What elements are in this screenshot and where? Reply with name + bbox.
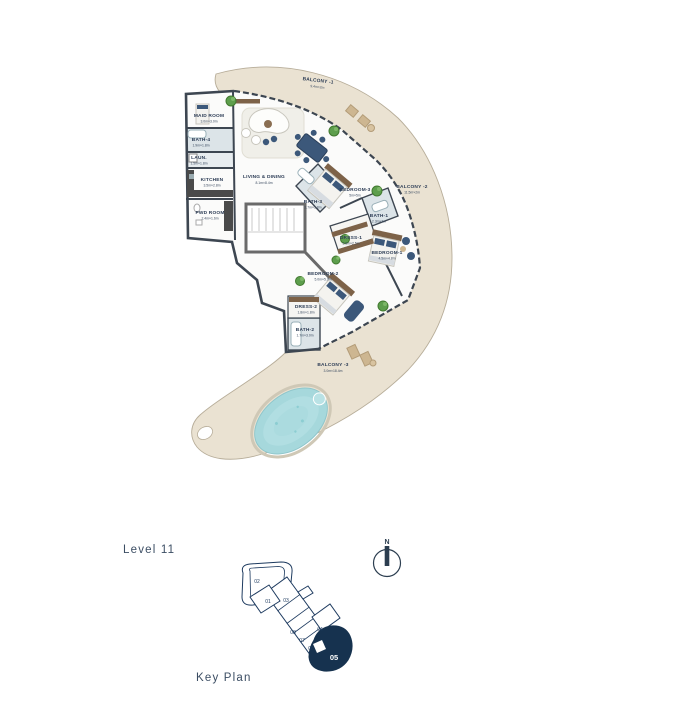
svg-text:BATH-2: BATH-2: [296, 327, 315, 333]
key-plan-unit-02: 02: [254, 579, 260, 585]
svg-text:8.1m×8.4m: 8.1m×8.4m: [255, 181, 272, 185]
tv-console: [234, 99, 260, 104]
svg-text:PWD ROOM: PWD ROOM: [195, 210, 224, 216]
level-label: Level 11: [123, 544, 175, 556]
svg-text:1.5m×1.8m: 1.5m×1.8m: [190, 162, 207, 166]
svg-text:4.5m×4.8m: 4.5m×4.8m: [378, 257, 395, 261]
svg-text:LAUN.: LAUN.: [191, 155, 207, 161]
svg-text:BEDROOM-3: BEDROOM-3: [339, 187, 370, 193]
svg-text:3.0m×3.0m: 3.0m×3.0m: [200, 120, 217, 124]
room-label-laundry: LAUN. 1.5m×1.8m: [190, 155, 207, 166]
key-plan-diagram: 01 02 03 04 05 06 07 08: [242, 562, 352, 671]
room-label-dress-1: DRESS-1 3.8m×2.5m: [340, 235, 362, 246]
north-compass-icon: N: [374, 539, 401, 577]
svg-text:BATH-4: BATH-4: [192, 137, 211, 143]
svg-text:5.0m×5.0m: 5.0m×5.0m: [314, 278, 331, 282]
svg-text:BALCONY -2: BALCONY -2: [396, 184, 427, 190]
svg-text:BEDROOM-1: BEDROOM-1: [371, 250, 402, 256]
svg-text:BATH-3: BATH-3: [304, 199, 323, 205]
svg-text:2.7m×1.8m: 2.7m×1.8m: [304, 206, 321, 210]
key-plan-label: Key Plan: [196, 672, 252, 684]
floorplan-page: BALCONY -1 9.4m×2m MAID ROOM 3.0m×3.0m B…: [0, 0, 687, 713]
room-label-kitchen: KITCHEN 3.5m×2.8m: [201, 177, 224, 188]
room-label-bath-4: BATH-4 1.9m×1.8m: [192, 137, 211, 148]
key-plan-unit-05: 05: [330, 653, 338, 662]
key-plan-unit-07: 07: [299, 638, 305, 644]
svg-text:DRESS-2: DRESS-2: [295, 304, 317, 310]
room-label-dress-2: DRESS-2 1.8m×1.8m: [295, 304, 317, 315]
bedroom1-armchair: [407, 252, 415, 260]
room-label-bath-3: BATH-3 2.7m×1.8m: [304, 199, 323, 210]
room-label-bath-2: BATH-2 1.7m×3.0m: [296, 327, 315, 338]
svg-text:BATH-1: BATH-1: [370, 213, 389, 219]
svg-text:3.0m×18.4m: 3.0m×18.4m: [324, 369, 343, 373]
svg-text:LIVING & DINING: LIVING & DINING: [243, 174, 285, 180]
north-letter: N: [384, 539, 389, 546]
svg-text:1.9m×1.8m: 1.9m×1.8m: [192, 144, 209, 148]
key-plan-unit-06: 06: [308, 646, 314, 652]
svg-text:BALCONY -3: BALCONY -3: [317, 362, 348, 368]
coffee-table: [264, 120, 272, 128]
key-plan-unit-08: 08: [290, 630, 296, 636]
svg-text:MAID ROOM: MAID ROOM: [194, 113, 224, 119]
svg-text:2.3m×3m: 2.3m×3m: [372, 220, 386, 224]
floorplan-canvas: BALCONY -1 9.4m×2m MAID ROOM 3.0m×3.0m B…: [0, 0, 687, 713]
svg-text:1.7m×3.0m: 1.7m×3.0m: [296, 334, 313, 338]
svg-text:1.8m×1.8m: 1.8m×1.8m: [297, 311, 314, 315]
svg-text:BEDROOM-2: BEDROOM-2: [307, 271, 338, 277]
key-plan-unit-04: 04: [317, 627, 323, 633]
svg-text:2.4m×1.6m: 2.4m×1.6m: [201, 217, 218, 221]
svg-text:DRESS-1: DRESS-1: [340, 235, 362, 241]
room-label-bath-1: BATH-1 2.3m×3m: [370, 213, 389, 224]
svg-text:5m×5m: 5m×5m: [349, 194, 361, 198]
key-plan-unit-03: 03: [283, 598, 289, 604]
key-plan-unit-01: 01: [265, 599, 271, 605]
svg-text:KITCHEN: KITCHEN: [201, 177, 224, 183]
svg-text:3.5m×2.8m: 3.5m×2.8m: [203, 184, 220, 188]
svg-text:11.5m×2m: 11.5m×2m: [404, 191, 420, 195]
bedroom1-armchair: [402, 237, 410, 245]
svg-text:3.8m×2.5m: 3.8m×2.5m: [342, 242, 359, 246]
